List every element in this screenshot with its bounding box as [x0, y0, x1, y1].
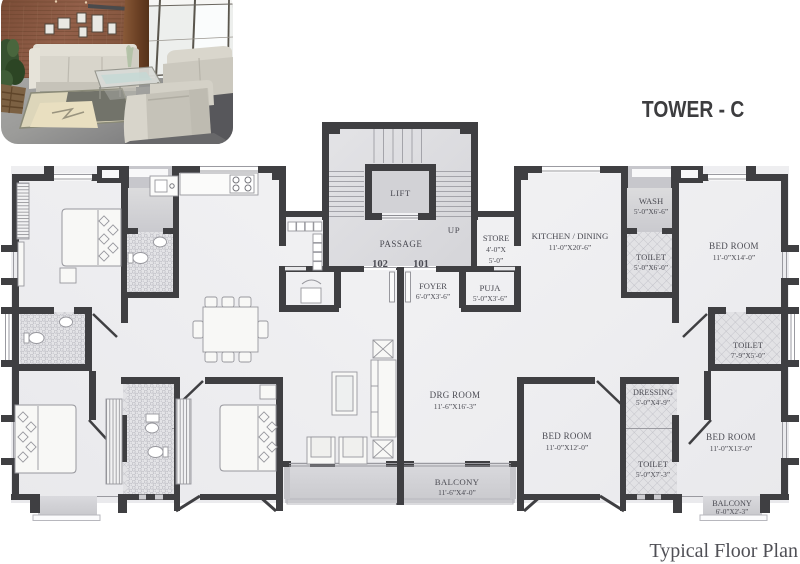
- svg-text:PUJA: PUJA: [479, 283, 501, 293]
- svg-text:TOWER - C: TOWER - C: [642, 97, 744, 122]
- svg-text:TOILET: TOILET: [733, 340, 764, 350]
- svg-text:BALCONY: BALCONY: [712, 499, 752, 508]
- svg-text:11'-6”X4'-0”: 11'-6”X4'-0”: [438, 488, 476, 497]
- svg-text:BALCONY: BALCONY: [435, 477, 480, 487]
- svg-text:11'-6”X16'-3”: 11'-6”X16'-3”: [434, 402, 477, 411]
- svg-text:BED ROOM: BED ROOM: [706, 432, 756, 442]
- svg-text:TOILET: TOILET: [638, 459, 669, 469]
- svg-text:7'-9”X5'-0”: 7'-9”X5'-0”: [731, 351, 765, 360]
- svg-text:DRESSING: DRESSING: [633, 388, 673, 397]
- svg-text:4'-0”X: 4'-0”X: [486, 245, 506, 254]
- svg-text:102: 102: [372, 259, 388, 270]
- svg-text:5'-0”X6'-0”: 5'-0”X6'-0”: [634, 263, 668, 272]
- svg-text:6'-0”X3'-6”: 6'-0”X3'-6”: [416, 292, 450, 301]
- svg-text:5'-0”: 5'-0”: [489, 256, 503, 265]
- svg-text:BED ROOM: BED ROOM: [542, 431, 592, 441]
- svg-text:Typical Floor Plan: Typical Floor Plan: [649, 540, 798, 562]
- svg-text:UP: UP: [448, 225, 460, 235]
- svg-text:11'-0”X20'-6”: 11'-0”X20'-6”: [549, 243, 592, 252]
- svg-text:5'-0”X6'-6”: 5'-0”X6'-6”: [634, 207, 668, 216]
- svg-text:FOYER: FOYER: [419, 281, 447, 291]
- svg-text:6'-0”X2'-3”: 6'-0”X2'-3”: [716, 508, 748, 516]
- svg-text:5'-0”X4'-9”: 5'-0”X4'-9”: [636, 398, 670, 407]
- svg-text:DRG ROOM: DRG ROOM: [430, 390, 481, 400]
- svg-text:5'-0”X3'-6”: 5'-0”X3'-6”: [473, 294, 507, 303]
- svg-text:TOILET: TOILET: [636, 252, 667, 262]
- svg-text:5'-0”X7'-3”: 5'-0”X7'-3”: [636, 470, 670, 479]
- svg-text:11'-0”X14'-0”: 11'-0”X14'-0”: [713, 253, 756, 262]
- svg-text:BED ROOM: BED ROOM: [709, 241, 759, 251]
- svg-text:PASSAGE: PASSAGE: [380, 239, 423, 249]
- svg-text:11'-0”X13'-0”: 11'-0”X13'-0”: [710, 444, 753, 453]
- svg-text:LIFT: LIFT: [390, 188, 411, 198]
- svg-text:STORE: STORE: [483, 234, 509, 243]
- svg-text:WASH: WASH: [639, 196, 663, 206]
- svg-text:KITCHEN / DINING: KITCHEN / DINING: [532, 231, 609, 241]
- svg-text:11'-0”X12'-0”: 11'-0”X12'-0”: [546, 443, 589, 452]
- svg-text:101: 101: [413, 259, 429, 270]
